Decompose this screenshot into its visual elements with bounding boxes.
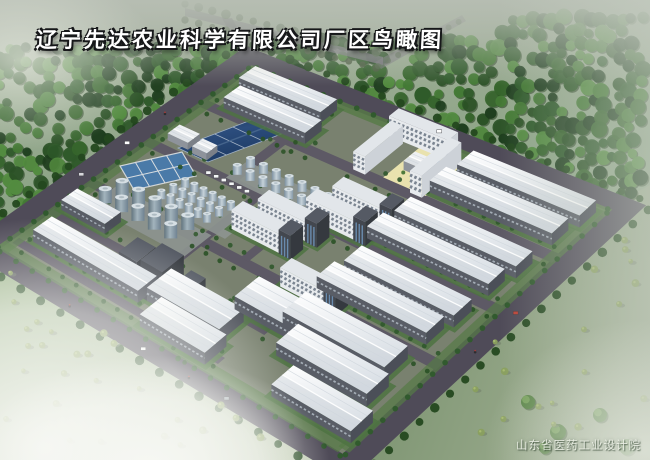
page-title: 辽宁先达农业科学有限公司厂区鸟瞰图 xyxy=(35,24,445,54)
site-plan-svg xyxy=(0,0,650,460)
designer-watermark: 山东省医药工业设计院 xyxy=(516,437,641,453)
aerial-rendering: 辽宁先达农业科学有限公司厂区鸟瞰图 山东省医药工业设计院 xyxy=(0,0,650,460)
